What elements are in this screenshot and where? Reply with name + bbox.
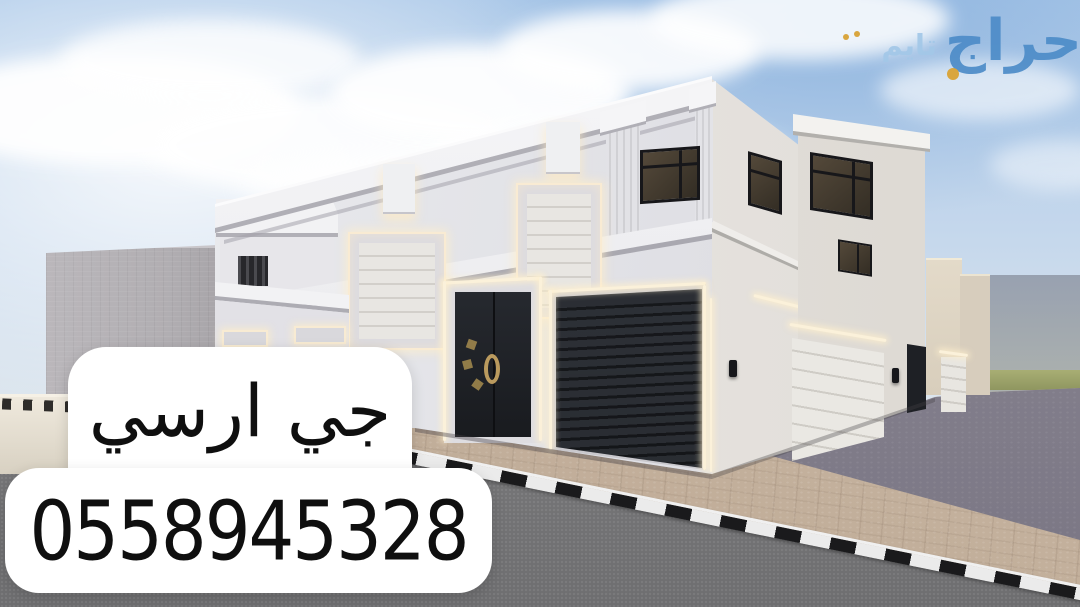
entrance-door [455, 292, 531, 437]
corner-led-strip [710, 298, 712, 472]
door-gold-accent [471, 378, 484, 391]
promo-title: جي ارسي [68, 352, 412, 470]
watermark-accent-dot [843, 34, 849, 40]
watermark-word-primary: حراج [945, 14, 1080, 68]
front-upper-window [640, 146, 700, 204]
window-mullion [813, 169, 870, 181]
window-mullion [643, 163, 697, 170]
watermark-word-secondary: تايم [881, 28, 936, 62]
parapet-ornament [383, 164, 415, 214]
tower-window-upper [810, 152, 873, 220]
led-strip [549, 290, 552, 450]
wall-sconce [729, 360, 737, 377]
balcony-railing [238, 256, 268, 286]
window-mullion [751, 169, 779, 180]
side-upper-window [748, 151, 782, 215]
tower-window-lower [838, 239, 872, 276]
door-gold-accent [466, 339, 478, 351]
wall-sconce [892, 368, 899, 383]
promo-phone: 0558945328 [5, 464, 492, 599]
cloud [60, 20, 360, 100]
led-strip [703, 285, 706, 470]
window-mullion [679, 150, 682, 198]
door-gold-accent [462, 359, 473, 370]
property-photo: جي ارسي 0558945328 حراج تايم [0, 0, 1080, 607]
parapet-ornament [546, 122, 580, 174]
pavilion-balcony-window [238, 256, 268, 286]
watermark-accent-dot [947, 68, 959, 80]
lit-frame-top [222, 330, 268, 347]
window-mullion [852, 162, 855, 214]
window-mullion [857, 244, 859, 272]
white-shutter [359, 243, 435, 339]
lit-frame-top [294, 326, 346, 344]
watermark-accent-dot [854, 31, 860, 37]
distant-garage-door [941, 357, 966, 412]
led-strip [539, 277, 542, 441]
door-handle [484, 354, 500, 384]
watermark-logo: حراج تايم [826, 14, 1080, 98]
lit-niche-window [348, 232, 446, 350]
led-strip [443, 281, 446, 441]
